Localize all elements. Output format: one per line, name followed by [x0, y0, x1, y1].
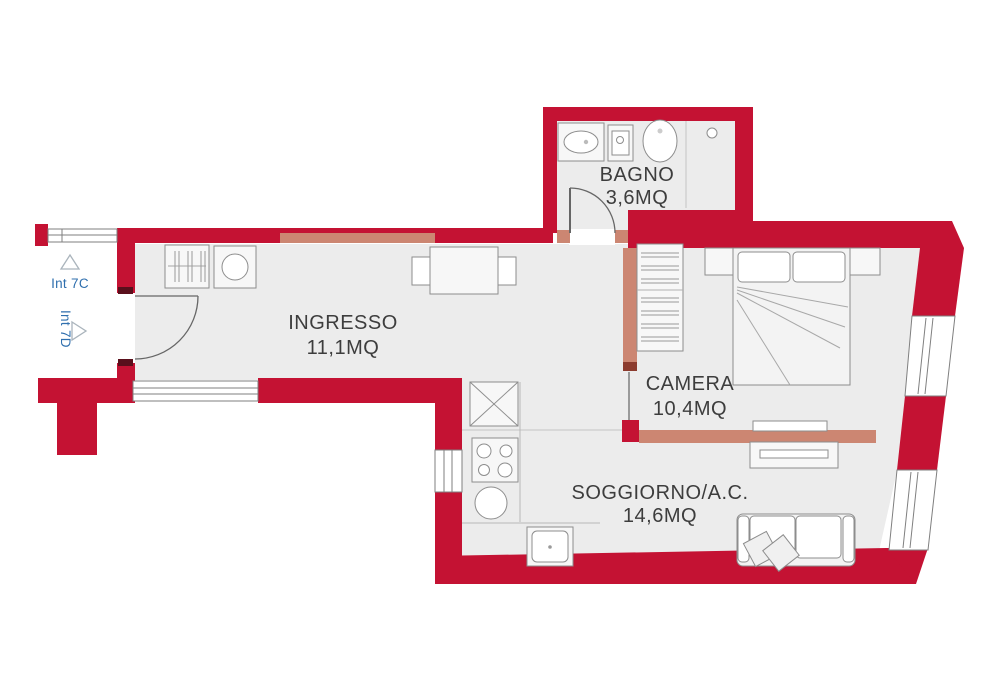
arrow-up-icon [61, 255, 79, 269]
fridge-cabinet [470, 382, 518, 426]
unit-label-7d: Int 7D [58, 310, 73, 348]
stove [472, 438, 518, 482]
nightstand-right [850, 248, 880, 275]
room-label-bagno: BAGNO [600, 164, 675, 186]
round-basin [475, 487, 507, 519]
entry-wall-lower [117, 363, 135, 403]
ingresso-wall-bottom-right [258, 378, 462, 403]
room-label-soggiorno: SOGGIORNO/A.C. [571, 482, 748, 504]
right-wall-pier-top [912, 248, 964, 316]
right-wall-pier-middle [897, 396, 946, 470]
kitchen-sink [527, 527, 573, 566]
room-area-ingresso: 11,1MQ [307, 337, 380, 359]
unit-label-7c: Int 7C [51, 276, 89, 291]
sofa [737, 514, 855, 571]
washing-machine [214, 246, 256, 288]
camera-door-jamb [623, 362, 637, 371]
floor-plan: BAGNO 3,6MQ INGRESSO 11,1MQ CAMERA 10,4M… [0, 0, 1000, 700]
camera-wall-left [623, 248, 637, 370]
soggiorno-wall-left-lower [435, 492, 462, 584]
room-area-bagno: 3,6MQ [606, 187, 669, 209]
bathroom-sink [558, 123, 604, 161]
room-area-camera: 10,4MQ [653, 398, 727, 420]
bagno-doorway [569, 229, 615, 245]
nightstand-left [705, 248, 733, 275]
ingresso-window [133, 381, 258, 401]
room-label-camera: CAMERA [646, 373, 735, 395]
landing-railing [48, 229, 117, 242]
wardrobe [637, 244, 683, 351]
soggiorno-left-window [435, 450, 462, 492]
bedside-rug [753, 421, 827, 431]
bagno-door-jamb-right [615, 230, 628, 243]
bathroom-washbasin [608, 125, 633, 161]
bagno-wall-left [543, 107, 557, 233]
floor-plan-page: BAGNO 3,6MQ INGRESSO 11,1MQ CAMERA 10,4M… [0, 0, 1000, 700]
bidet [643, 120, 677, 162]
coat-closet [165, 245, 209, 288]
double-bed [733, 248, 850, 385]
camera-wall-bottom [639, 430, 876, 443]
drain-symbol [707, 128, 717, 138]
camera-door-post [622, 420, 639, 442]
arrow-right-icon [72, 322, 86, 340]
room-label-ingresso: INGRESSO [288, 312, 398, 334]
tv-cabinet [750, 442, 838, 468]
entry-wall-upper [117, 228, 135, 293]
stair-wall-stub [57, 403, 97, 455]
soggiorno-right-window [889, 470, 937, 550]
ingresso-partition-segment [280, 233, 435, 243]
bagno-wall-top [543, 107, 753, 121]
room-area-soggiorno: 14,6MQ [623, 505, 697, 527]
landing-wall-stub [35, 224, 48, 246]
camera-right-window [905, 316, 955, 396]
camera-wall-top [628, 210, 964, 248]
bagno-door-jamb-left [557, 230, 570, 243]
